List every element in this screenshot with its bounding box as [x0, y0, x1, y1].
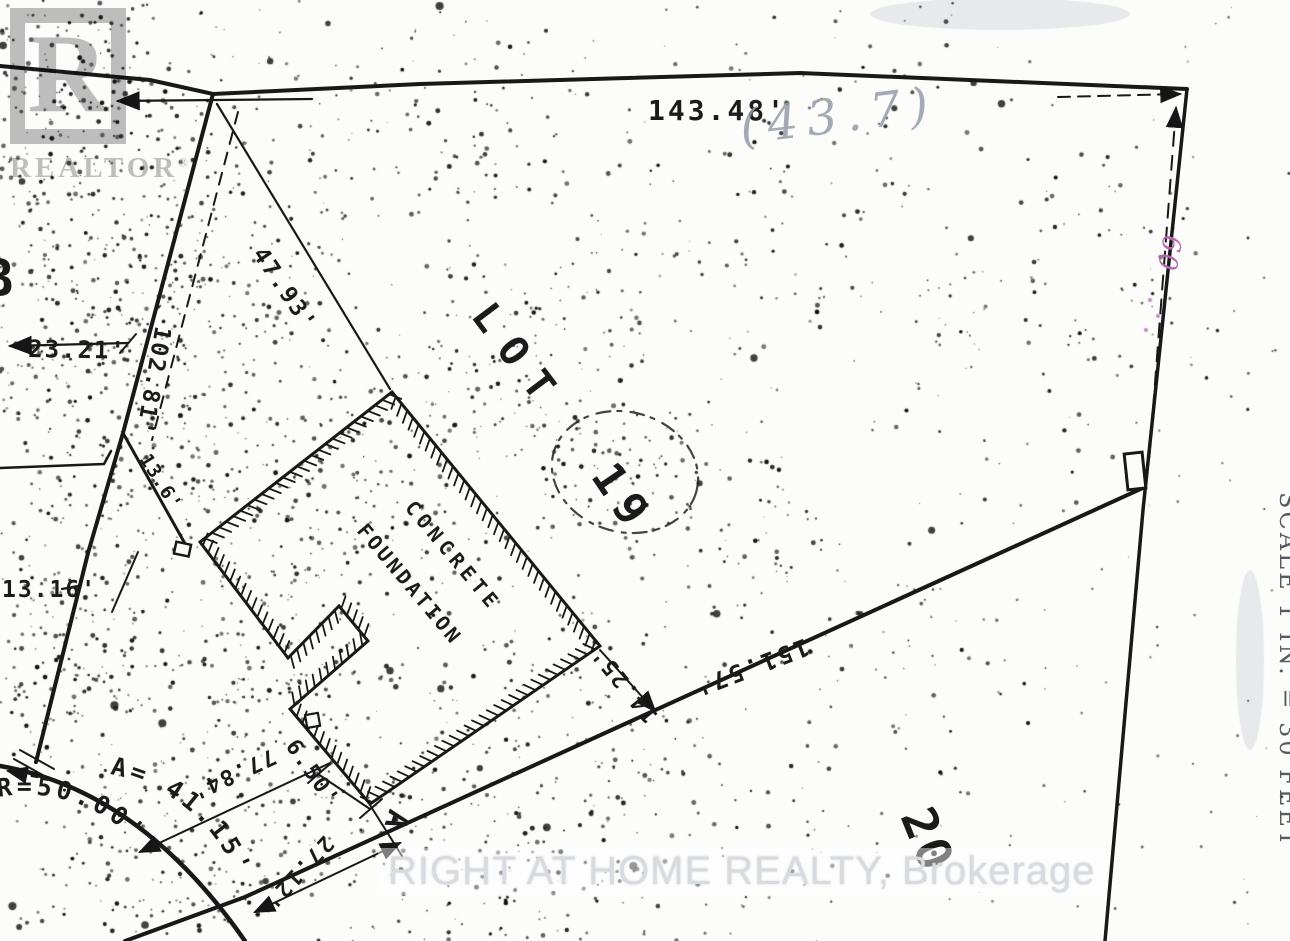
survey-monument-west: [174, 542, 191, 557]
lot-boundary-east: [1105, 89, 1187, 941]
lot-boundary-west: [36, 94, 213, 762]
label-lot-num: 19: [581, 454, 664, 543]
label-dim-2712: 27.12': [257, 830, 338, 914]
scale-note: SCALE 1 IN. = 30 FEET: [1274, 492, 1290, 849]
realtor-watermark: R REALTOR®: [10, 8, 188, 185]
foundation-hatching: [203, 394, 596, 802]
registered-symbol: ®: [178, 154, 188, 169]
survey-scan-page: 143.48'47.93'23.21'102.81'13.16'13.6'LOT…: [0, 0, 1290, 941]
stray-survey-tick: [112, 552, 138, 612]
label-lot-b: B: [0, 249, 13, 309]
brokerage-watermark: RIGHT AT HOME REALTY, Brokerage: [378, 848, 1106, 895]
realtor-wordmark: REALTOR®: [10, 152, 188, 185]
handwritten-pink-note: 60: [1151, 233, 1187, 275]
survey-plan-drawing: 143.48'47.93'23.21'102.81'13.16'13.6'LOT…: [0, 0, 1290, 941]
label-lot-word: LOT: [462, 294, 575, 423]
label-dim-1425: 14.25': [586, 641, 663, 728]
realtor-logo-r: R: [28, 25, 109, 124]
tie-line-47-93: [217, 104, 390, 389]
adjacent-lot-line-west: [0, 451, 111, 468]
survey-monument-east: [1124, 452, 1146, 490]
label-dim-136: 13.6': [135, 450, 187, 514]
label-dim-1316: 13.16': [2, 577, 97, 603]
dim-line-143-48-right: [1058, 94, 1180, 97]
label-dim-2321: 23.21': [28, 335, 127, 365]
dim-line-east-dashed: [1149, 108, 1176, 462]
survey-monument-notch: [305, 713, 320, 728]
realtor-word-text: REALTOR: [10, 152, 178, 184]
handwritten-measurement: (43.7): [737, 76, 941, 156]
foundation-outline: [200, 392, 600, 804]
realtor-logo-box: R: [10, 8, 126, 144]
label-dim-15157: 151.57': [689, 633, 813, 703]
